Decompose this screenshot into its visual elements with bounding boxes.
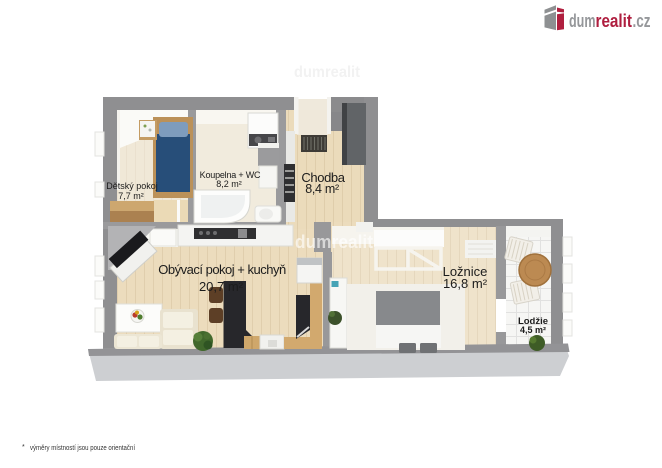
svg-text:Obývací pokoj + kuchyň: Obývací pokoj + kuchyň: [158, 262, 286, 277]
svg-text:8,2 m²: 8,2 m²: [216, 179, 242, 189]
svg-text:realit: realit: [596, 11, 633, 31]
svg-text:Dětský pokoj: Dětský pokoj: [106, 181, 158, 191]
svg-text:*: *: [22, 444, 25, 451]
svg-text:16,8 m²: 16,8 m²: [443, 276, 488, 291]
svg-text:8,4 m²: 8,4 m²: [305, 182, 339, 196]
svg-text:.cz: .cz: [633, 11, 651, 31]
svg-text:dumrealit: dumrealit: [295, 232, 373, 252]
svg-text:4,5 m²: 4,5 m²: [520, 325, 546, 335]
svg-text:dum: dum: [569, 11, 596, 31]
svg-text:výměry místností jsou pouze or: výměry místností jsou pouze orientační: [30, 445, 135, 452]
svg-text:dumrealit: dumrealit: [294, 64, 360, 81]
svg-text:20,7 m²: 20,7 m²: [199, 279, 244, 294]
svg-text:7,7 m²: 7,7 m²: [118, 191, 144, 201]
